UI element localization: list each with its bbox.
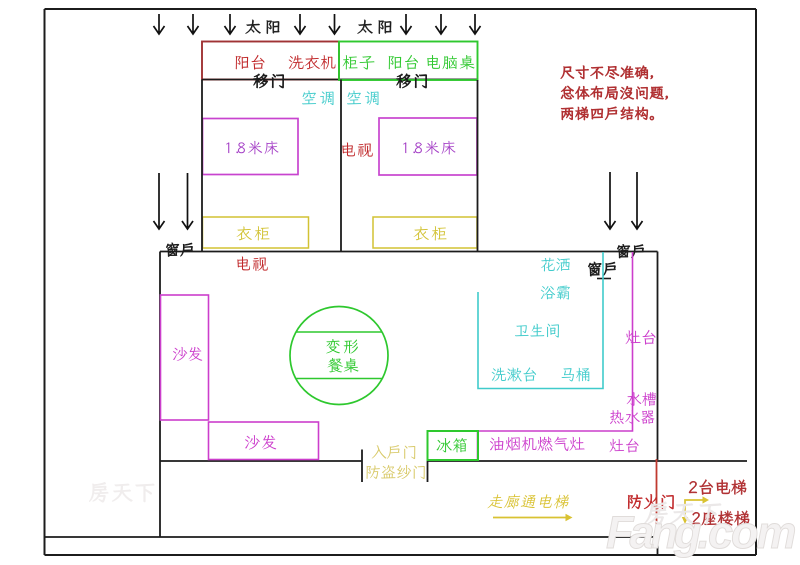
- svg-text:Fang.com: Fang.com: [606, 507, 796, 558]
